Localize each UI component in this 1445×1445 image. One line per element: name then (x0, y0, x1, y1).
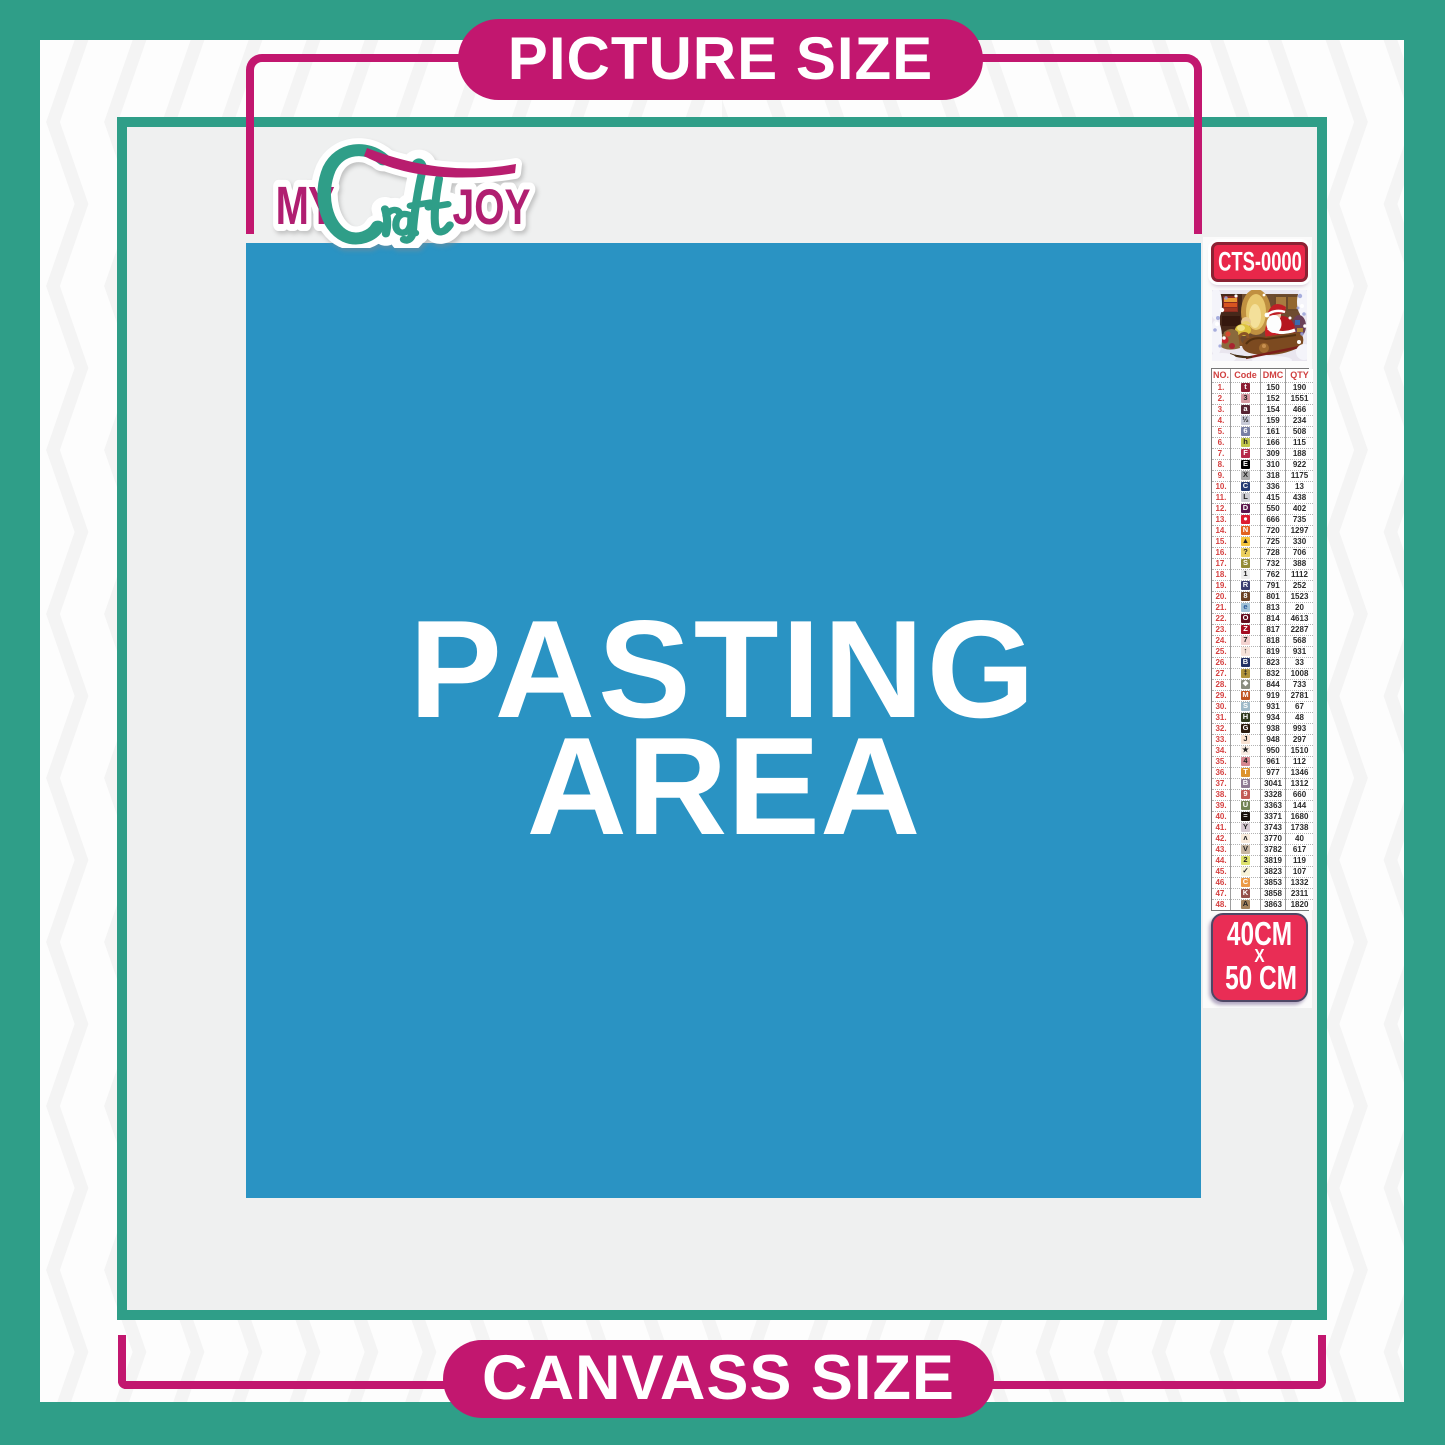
svg-text:JOY: JOY (453, 178, 531, 235)
